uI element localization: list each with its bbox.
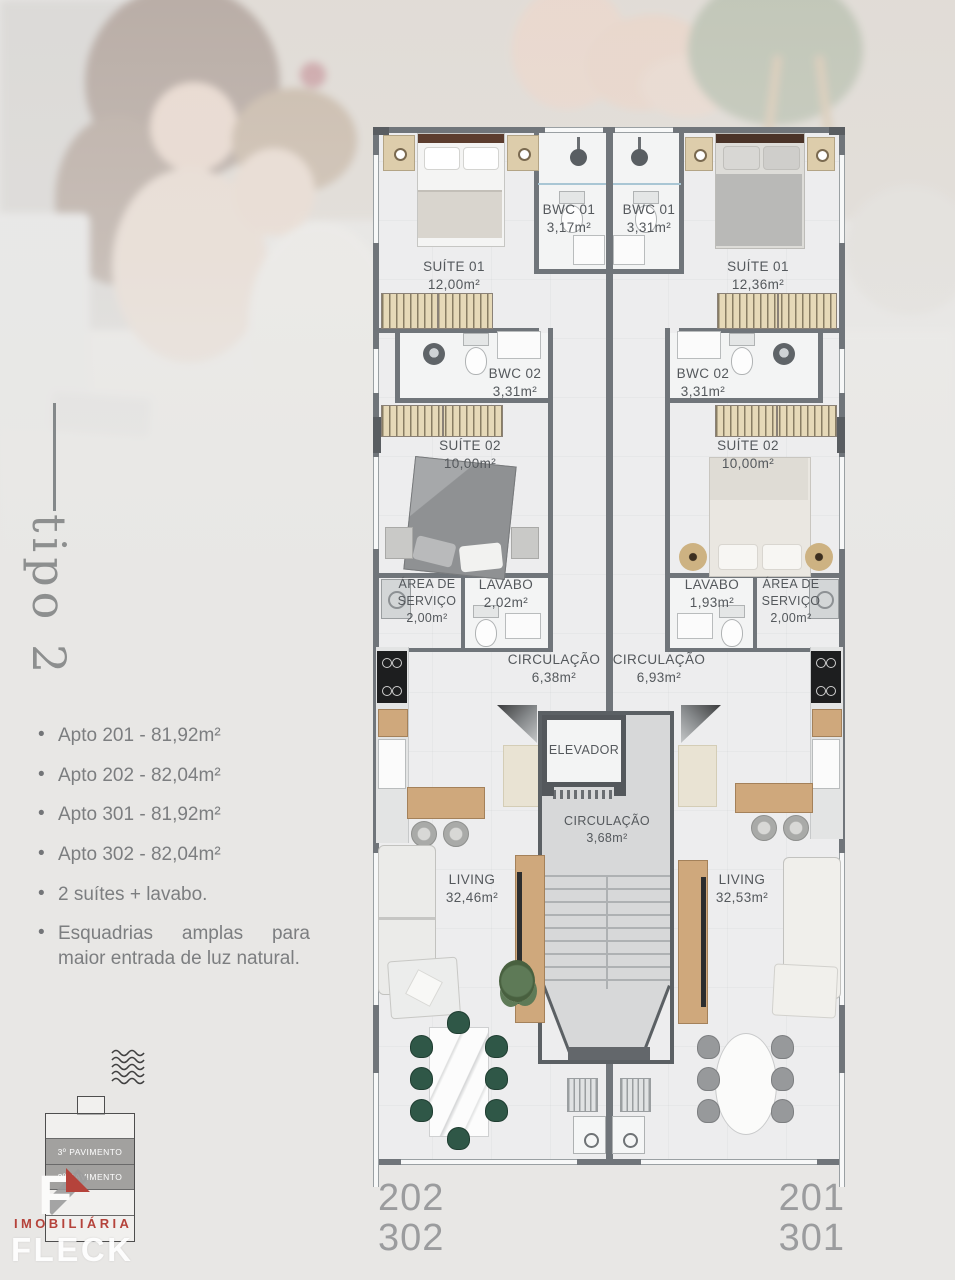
window: [641, 1159, 817, 1165]
room-label-bwc02-right: BWC 02 3,31m²: [677, 365, 730, 401]
wall: [839, 127, 845, 1165]
nightstand: [385, 527, 413, 559]
shower-glass: [613, 183, 681, 185]
wall-column: [837, 417, 845, 453]
entry-door: [681, 705, 721, 743]
wall: [665, 328, 670, 652]
wall-column: [373, 127, 389, 135]
unit-numbers-left: 202 302: [378, 1178, 444, 1259]
ottoman: [772, 963, 839, 1018]
window: [839, 1073, 845, 1187]
room-label-suite01-left: SUÍTE 01 12,00m²: [423, 258, 485, 294]
elevator-jamb: [542, 787, 554, 796]
room-label-servico-left: ÁREA DE SERVIÇO 2,00m²: [398, 576, 457, 627]
brand-name-label: FLECK: [11, 1231, 134, 1269]
chair: [697, 1099, 720, 1123]
shower-head-icon: [631, 149, 648, 166]
wall: [548, 328, 553, 652]
wall: [461, 578, 465, 652]
entry-door: [497, 705, 537, 743]
room-label-suite01-right: SUÍTE 01 12,36m²: [727, 258, 789, 294]
sink-vanity: [677, 613, 713, 639]
nightstand: [507, 135, 539, 171]
nightstand: [807, 137, 835, 171]
wall: [373, 127, 379, 1165]
chair: [410, 1035, 433, 1058]
pouf: [805, 543, 833, 571]
wardrobe: [715, 405, 837, 437]
pouf: [679, 543, 707, 571]
room-label-suite02-right: SUÍTE 02 10,00m²: [717, 437, 779, 473]
fridge-icon: [378, 739, 406, 789]
room-label-bwc01-left: BWC 01 3,17m²: [543, 201, 596, 237]
list-item: Apto 301 - 81,92m²: [38, 803, 310, 828]
title-dash: [53, 403, 56, 511]
stair-divider: [606, 875, 608, 989]
unit-numbers-right: 201 301: [779, 1178, 845, 1259]
chair: [771, 1099, 794, 1123]
bed-suite02-left: [403, 456, 516, 580]
dining-table-oval: [715, 1033, 777, 1135]
stair-landing: [568, 1047, 650, 1060]
bbq-grill: [567, 1078, 598, 1112]
window: [373, 349, 379, 393]
room-label-circulacao-core: CIRCULAÇÃO 3,68m²: [564, 813, 650, 847]
page-title: tipo 2: [22, 514, 76, 678]
wall-column: [373, 417, 381, 453]
chair: [447, 1011, 470, 1034]
chair: [485, 1099, 508, 1122]
shower-head-icon: [570, 149, 587, 166]
room-label-circulacao-left: CIRCULAÇÃO 6,38m²: [508, 651, 601, 687]
nightstand: [511, 527, 539, 559]
feature-list: Apto 201 - 81,92m² Apto 202 - 82,04m² Ap…: [38, 724, 310, 987]
sink-vanity: [505, 613, 541, 639]
list-item: Apto 201 - 81,92m²: [38, 724, 310, 749]
stool: [783, 815, 809, 841]
room-label-servico-right: ÁREA DE SERVIÇO 2,00m²: [762, 576, 821, 627]
floor-row-3: 3º PAVIMENTO: [46, 1139, 134, 1164]
room-label-circulacao-right: CIRCULAÇÃO 6,93m²: [613, 651, 706, 687]
entry-mat: [503, 745, 542, 807]
stool: [443, 821, 469, 847]
stool: [751, 815, 777, 841]
room-label-elevador: ELEVADOR: [549, 742, 619, 759]
floor-plan: SUÍTE 01 12,00m² BWC 01 3,17m² BWC 01 3,…: [373, 127, 845, 1165]
list-item: Apto 302 - 82,04m²: [38, 843, 310, 868]
room-label-bwc02-left: BWC 02 3,31m²: [489, 365, 542, 401]
room-label-suite02-left: SUÍTE 02 10,00m²: [439, 437, 501, 473]
chair: [410, 1067, 433, 1090]
breakfast-bar: [407, 787, 485, 819]
party-wall: [606, 127, 613, 711]
wall: [818, 328, 823, 403]
bed-suite01-left: [417, 133, 505, 247]
bed-suite02-right: [709, 457, 811, 577]
wardrobe: [717, 293, 837, 329]
chair: [485, 1067, 508, 1090]
toilet-icon: [729, 333, 755, 375]
nightstand: [685, 137, 713, 171]
cooktop-icon: [811, 651, 841, 703]
room-label-living-right: LIVING 32,53m²: [716, 871, 768, 907]
kitchen-shelf: [812, 709, 842, 737]
window: [839, 457, 845, 549]
fleck-logo-icon: F: [36, 1164, 98, 1224]
chair: [771, 1067, 794, 1091]
chair: [447, 1127, 470, 1150]
wall-column: [829, 127, 845, 135]
kitchen-shelf: [378, 709, 408, 737]
wall: [534, 269, 684, 274]
bed-suite01-right: [715, 133, 805, 249]
stool: [411, 821, 437, 847]
wall: [679, 127, 684, 274]
elevator-jamb: [614, 787, 626, 796]
window: [545, 127, 603, 133]
sink-vanity: [613, 235, 645, 265]
list-item: Esquadrias amplas para maior entrada de …: [38, 922, 310, 971]
chair: [697, 1035, 720, 1059]
window: [373, 457, 379, 549]
floor-row: [46, 1114, 134, 1139]
nightstand: [383, 135, 415, 171]
wall: [753, 578, 757, 652]
wardrobe: [381, 293, 493, 329]
elevator-door: [553, 790, 615, 799]
chair: [697, 1067, 720, 1091]
room-label-bwc01-right: BWC 01 3,31m²: [623, 201, 676, 237]
waves-icon: [110, 1048, 150, 1093]
room-label-lavabo-right: LAVABO 1,93m²: [685, 576, 739, 612]
round-basin: [773, 343, 795, 365]
ottoman: [387, 957, 461, 1020]
entry-mat: [678, 745, 717, 807]
tv-console: [678, 860, 708, 1024]
toilet-icon: [463, 333, 489, 375]
fridge-icon: [812, 739, 840, 789]
window: [373, 1073, 379, 1187]
plant-icon: [499, 960, 535, 1002]
window: [373, 155, 379, 243]
bbq-grill: [620, 1078, 651, 1112]
room-label-living-left: LIVING 32,46m²: [446, 871, 498, 907]
chair: [485, 1035, 508, 1058]
bbq-sink: [612, 1116, 645, 1154]
room-label-lavabo-left: LAVABO 2,02m²: [479, 576, 533, 612]
round-basin: [423, 343, 445, 365]
window: [839, 155, 845, 243]
window: [615, 127, 673, 133]
chair: [410, 1099, 433, 1122]
list-item: 2 suítes + lavabo.: [38, 883, 310, 908]
bbq-sink: [573, 1116, 606, 1154]
wall: [395, 328, 400, 403]
wardrobe: [381, 405, 503, 437]
window: [839, 349, 845, 393]
shower-glass: [538, 183, 606, 185]
list-item: Apto 202 - 82,04m²: [38, 764, 310, 789]
dining-table-marble: [429, 1027, 489, 1137]
sink-vanity: [573, 235, 605, 265]
breakfast-bar: [735, 783, 813, 813]
cooktop-icon: [377, 651, 407, 703]
brand-type-label: IMOBILIÁRIA: [14, 1216, 132, 1231]
window: [401, 1159, 577, 1165]
sink-vanity: [497, 331, 541, 359]
chair: [771, 1035, 794, 1059]
sink-vanity: [677, 331, 721, 359]
